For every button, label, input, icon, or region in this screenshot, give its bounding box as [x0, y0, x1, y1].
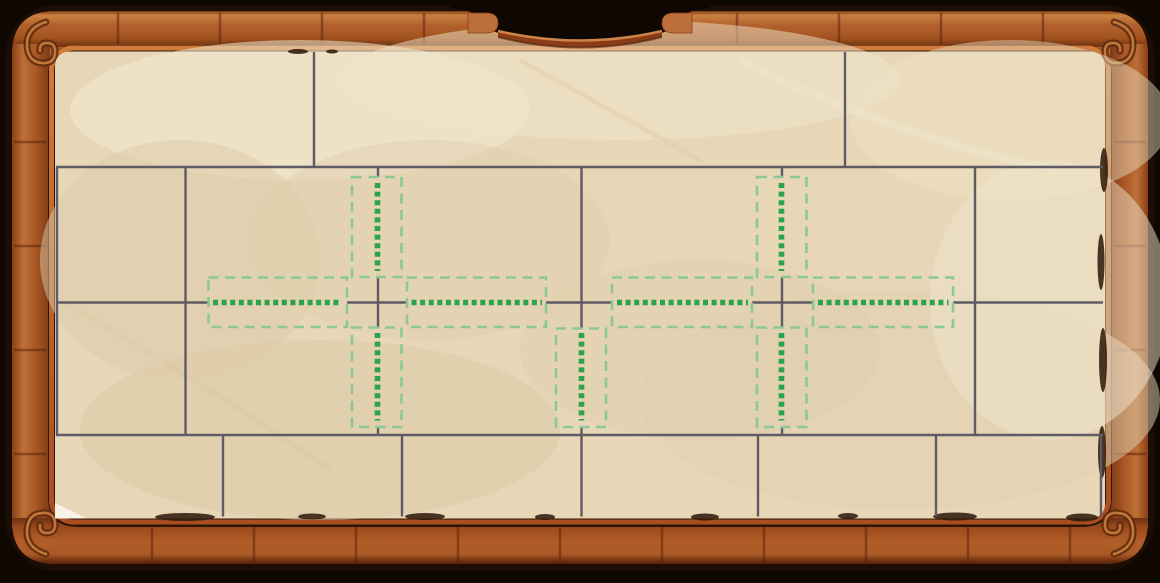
board-scene [0, 0, 1160, 583]
parchment [40, 20, 1160, 522]
game-board [0, 0, 1160, 583]
